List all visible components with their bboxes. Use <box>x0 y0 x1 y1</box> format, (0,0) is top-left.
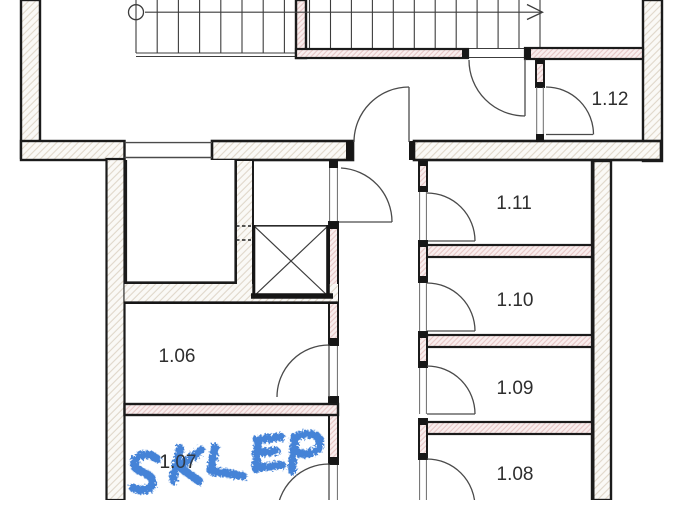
svg-text:1.07: 1.07 <box>160 452 197 473</box>
svg-text:1.10: 1.10 <box>497 290 534 311</box>
svg-text:1.06: 1.06 <box>159 346 196 367</box>
svg-text:1.08: 1.08 <box>497 464 534 485</box>
svg-text:1.11: 1.11 <box>496 193 532 214</box>
svg-text:1.09: 1.09 <box>497 378 534 399</box>
svg-text:1.12: 1.12 <box>592 89 629 110</box>
